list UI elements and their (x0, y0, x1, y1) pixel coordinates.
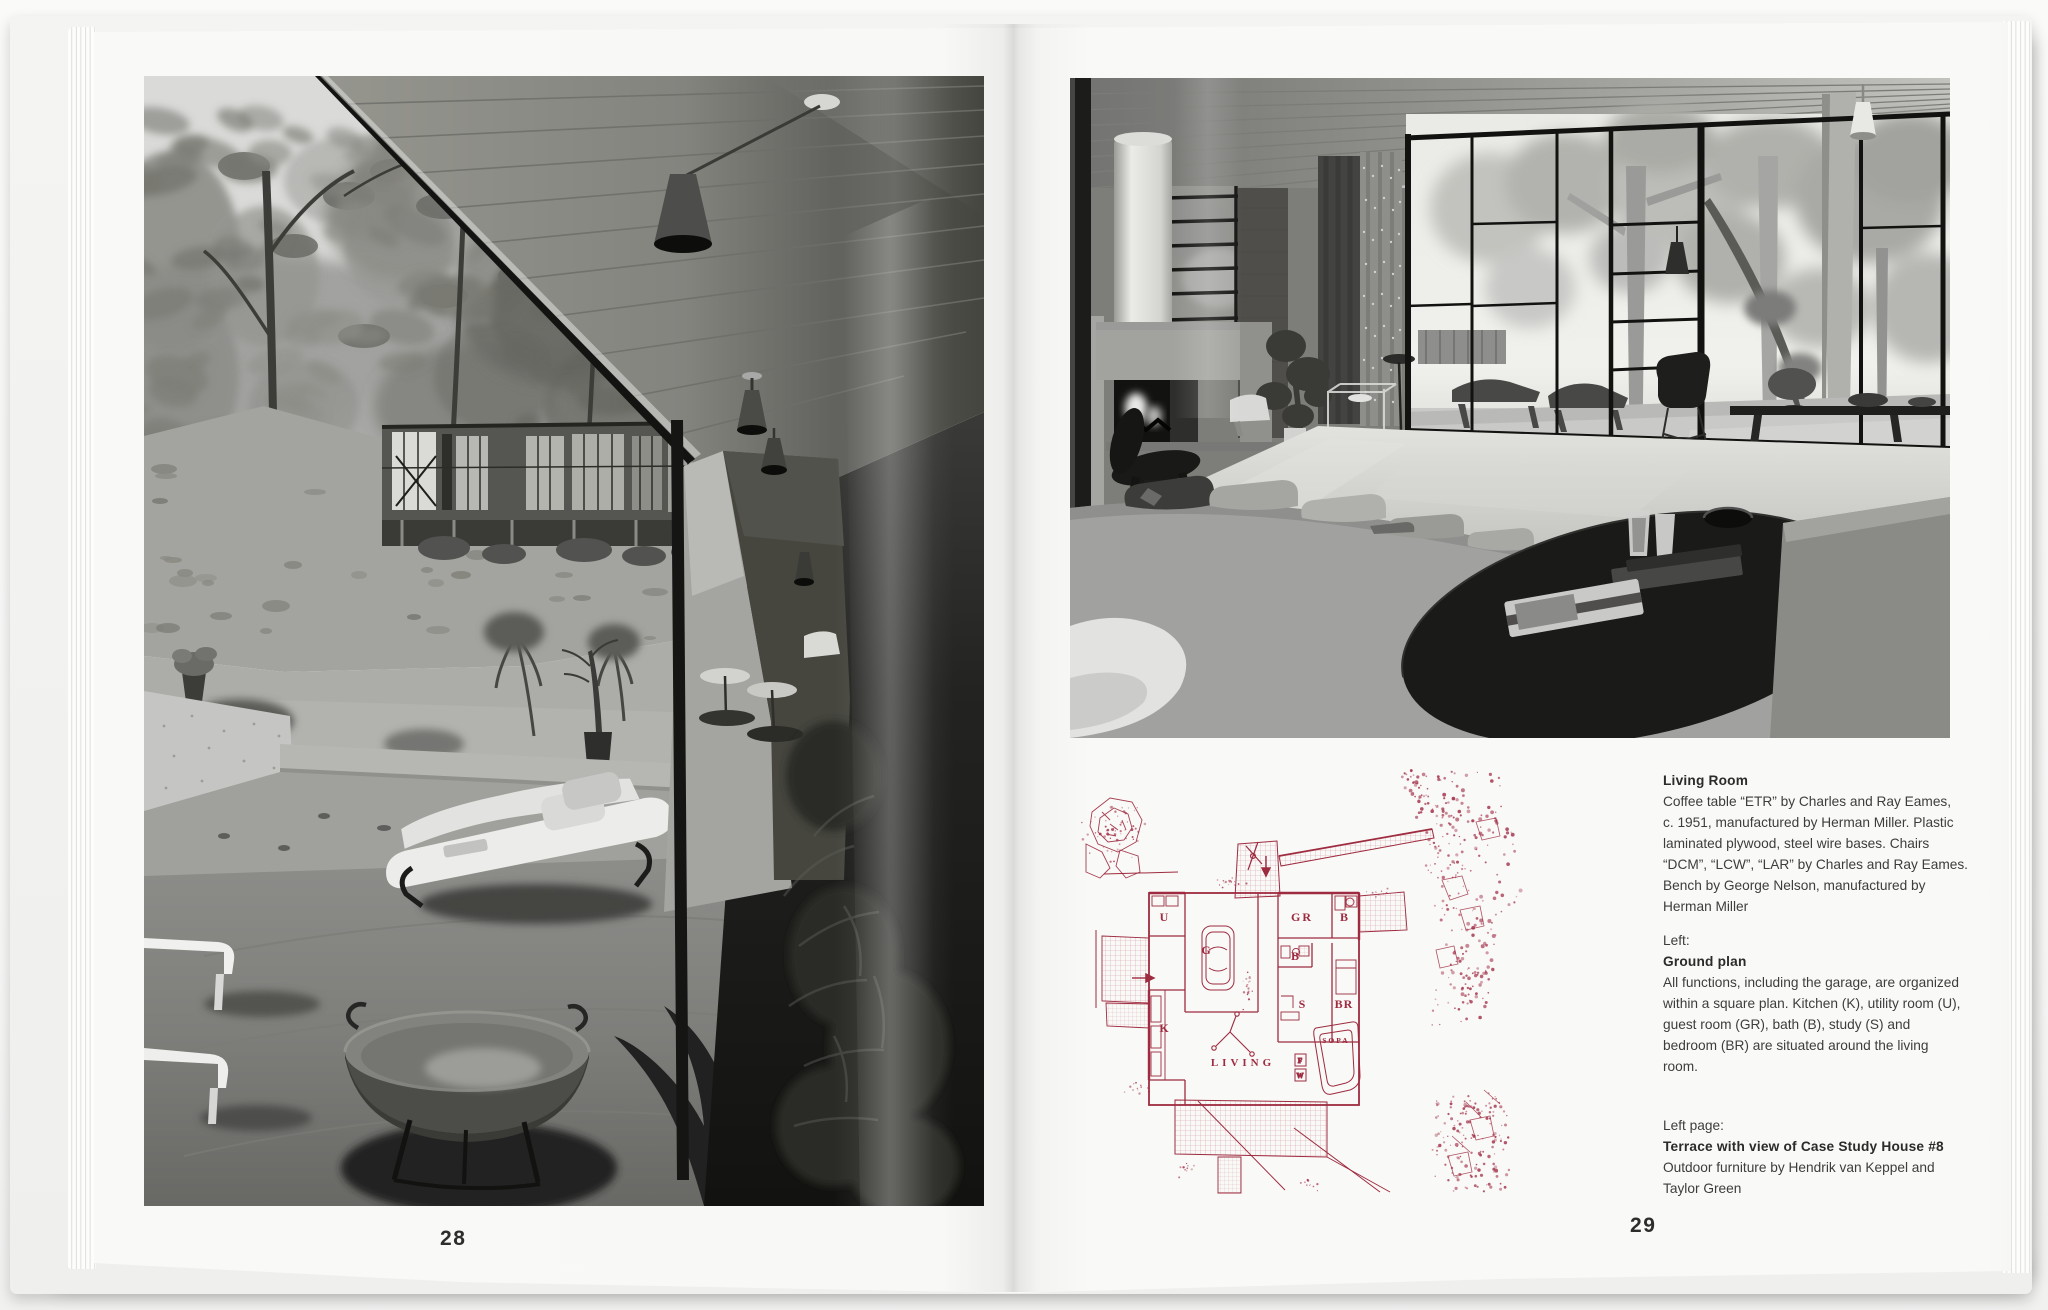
svg-text:GR: GR (1291, 910, 1313, 924)
svg-text:B: B (1291, 949, 1299, 963)
svg-text:W: W (1297, 1072, 1304, 1080)
svg-text:S: S (1299, 997, 1306, 1011)
svg-text:U: U (1160, 910, 1169, 924)
svg-text:BR: BR (1335, 997, 1354, 1011)
svg-text:SOPA: SOPA (1322, 1036, 1349, 1045)
svg-text:G: G (1201, 943, 1210, 957)
svg-text:K: K (1159, 1021, 1169, 1035)
svg-text:B: B (1340, 910, 1348, 924)
svg-text:LIVING: LIVING (1211, 1057, 1275, 1069)
svg-text:F: F (1298, 1057, 1302, 1065)
